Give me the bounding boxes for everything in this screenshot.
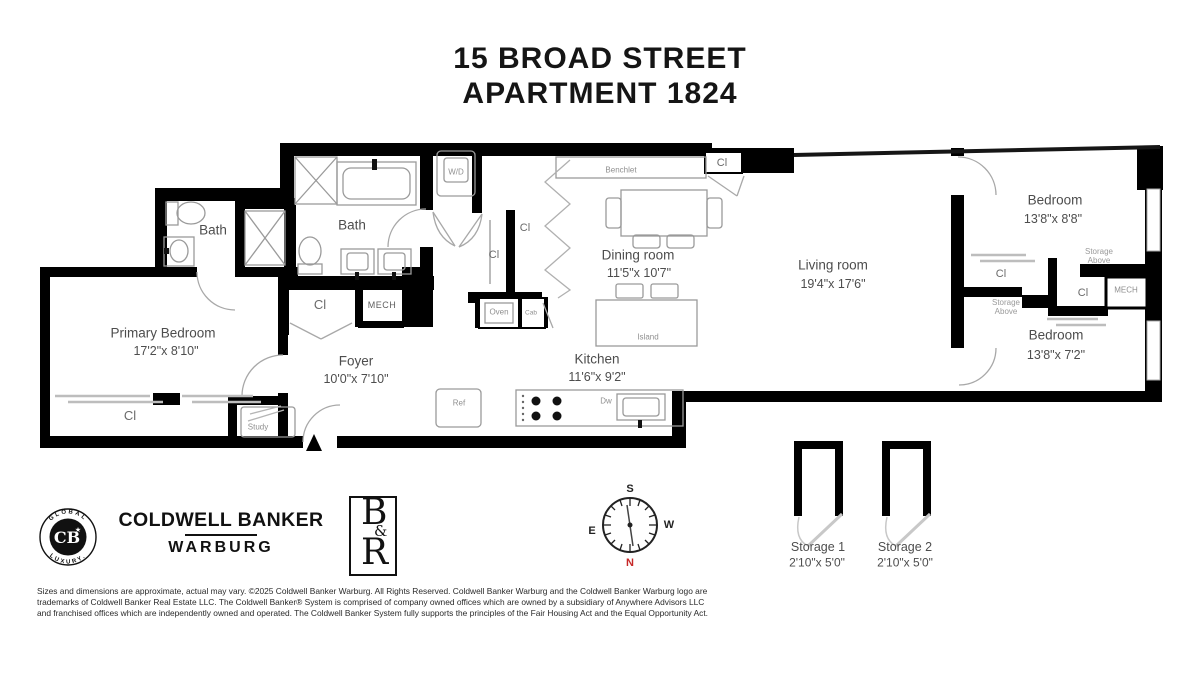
compass-east: E	[588, 525, 595, 537]
closet-label-hall-2: Cl	[520, 222, 530, 234]
island-label: Island	[637, 334, 658, 343]
cab-label: Cab	[525, 309, 537, 316]
oven-label: Oven	[489, 309, 508, 318]
study-label: Study	[248, 424, 268, 433]
compass-north: N	[626, 557, 634, 569]
closet-label-primary: Cl	[124, 409, 136, 423]
firm-name: COLDWELL BANKER	[115, 509, 327, 532]
closet-label-dining: Cl	[717, 157, 727, 169]
disclaimer-line-3: and franchised offices which are indepen…	[37, 608, 717, 619]
dining-room-label: Dining room	[602, 249, 675, 264]
living-room-dims: 19'4"x 17'6"	[800, 278, 865, 292]
bedroom-north-dims: 13'8"x 8'8"	[1024, 213, 1082, 227]
primary-bedroom-dims: 17'2"x 8'10"	[133, 345, 198, 359]
bedroom-south-dims: 13'8"x 7'2"	[1027, 349, 1085, 363]
foyer-label: Foyer	[339, 355, 374, 370]
storage-2-label: Storage 2	[878, 541, 932, 555]
mech-label-right: MECH	[1114, 287, 1138, 296]
storage-1-dims: 2'10"x 5'0"	[789, 556, 845, 569]
compass-west: W	[664, 519, 675, 531]
storage-2-dims: 2'10"x 5'0"	[877, 556, 933, 569]
living-room-label: Living room	[798, 259, 868, 274]
br-monogram-r: R	[361, 532, 388, 573]
br-monogram: B & R	[349, 496, 397, 576]
mech-label-foyer: MECH	[368, 301, 397, 311]
coldwell-banker-wordmark: COLDWELL BANKER WARBURG	[115, 509, 327, 557]
storage-1-label: Storage 1	[791, 541, 845, 555]
bath-primary-label: Bath	[199, 224, 227, 239]
closet-label-foyer: Cl	[314, 298, 326, 312]
seal-star-icon: ★	[75, 526, 81, 534]
closet-label-hall-1: Cl	[489, 249, 499, 261]
dishwasher-label: Dw	[600, 398, 612, 407]
primary-bedroom-label: Primary Bedroom	[110, 327, 215, 342]
closet-label-bedS: Cl	[1078, 287, 1088, 299]
global-luxury-seal: GLOBAL LUXURY. CB ★	[38, 507, 98, 567]
floorplan-page: 15 BROAD STREET APARTMENT 1824	[0, 0, 1200, 675]
kitchen-label: Kitchen	[574, 353, 619, 368]
storage-above-label-left: Storage Above	[983, 298, 1029, 316]
foyer-dims: 10'0"x 7'10"	[323, 373, 388, 387]
disclaimer-line-2: trademarks of Coldwell Banker Real Estat…	[37, 597, 717, 608]
ref-label: Ref	[453, 400, 465, 409]
compass-south: S	[626, 483, 633, 495]
bedroom-north-label: Bedroom	[1028, 194, 1083, 209]
benchlet-label: Benchlet	[605, 167, 636, 176]
disclaimer-line-1: Sizes and dimensions are approximate, ac…	[37, 586, 717, 597]
bath-main-label: Bath	[338, 219, 366, 234]
washer-dryer-label: W/D	[448, 169, 464, 178]
storage-units	[794, 441, 931, 546]
wordmark-rule	[185, 534, 257, 536]
storage-above-label-right: Storage Above	[1076, 247, 1122, 265]
entry-arrow	[306, 434, 322, 451]
firm-subname: WARBURG	[115, 539, 327, 557]
kitchen-dims: 11'6"x 9'2"	[568, 371, 625, 385]
compass-rose: S W E N	[588, 483, 674, 569]
bedroom-south-label: Bedroom	[1029, 329, 1084, 344]
closet-label-bedN: Cl	[996, 268, 1006, 280]
dining-room-dims: 11'5"x 10'7"	[607, 267, 671, 281]
